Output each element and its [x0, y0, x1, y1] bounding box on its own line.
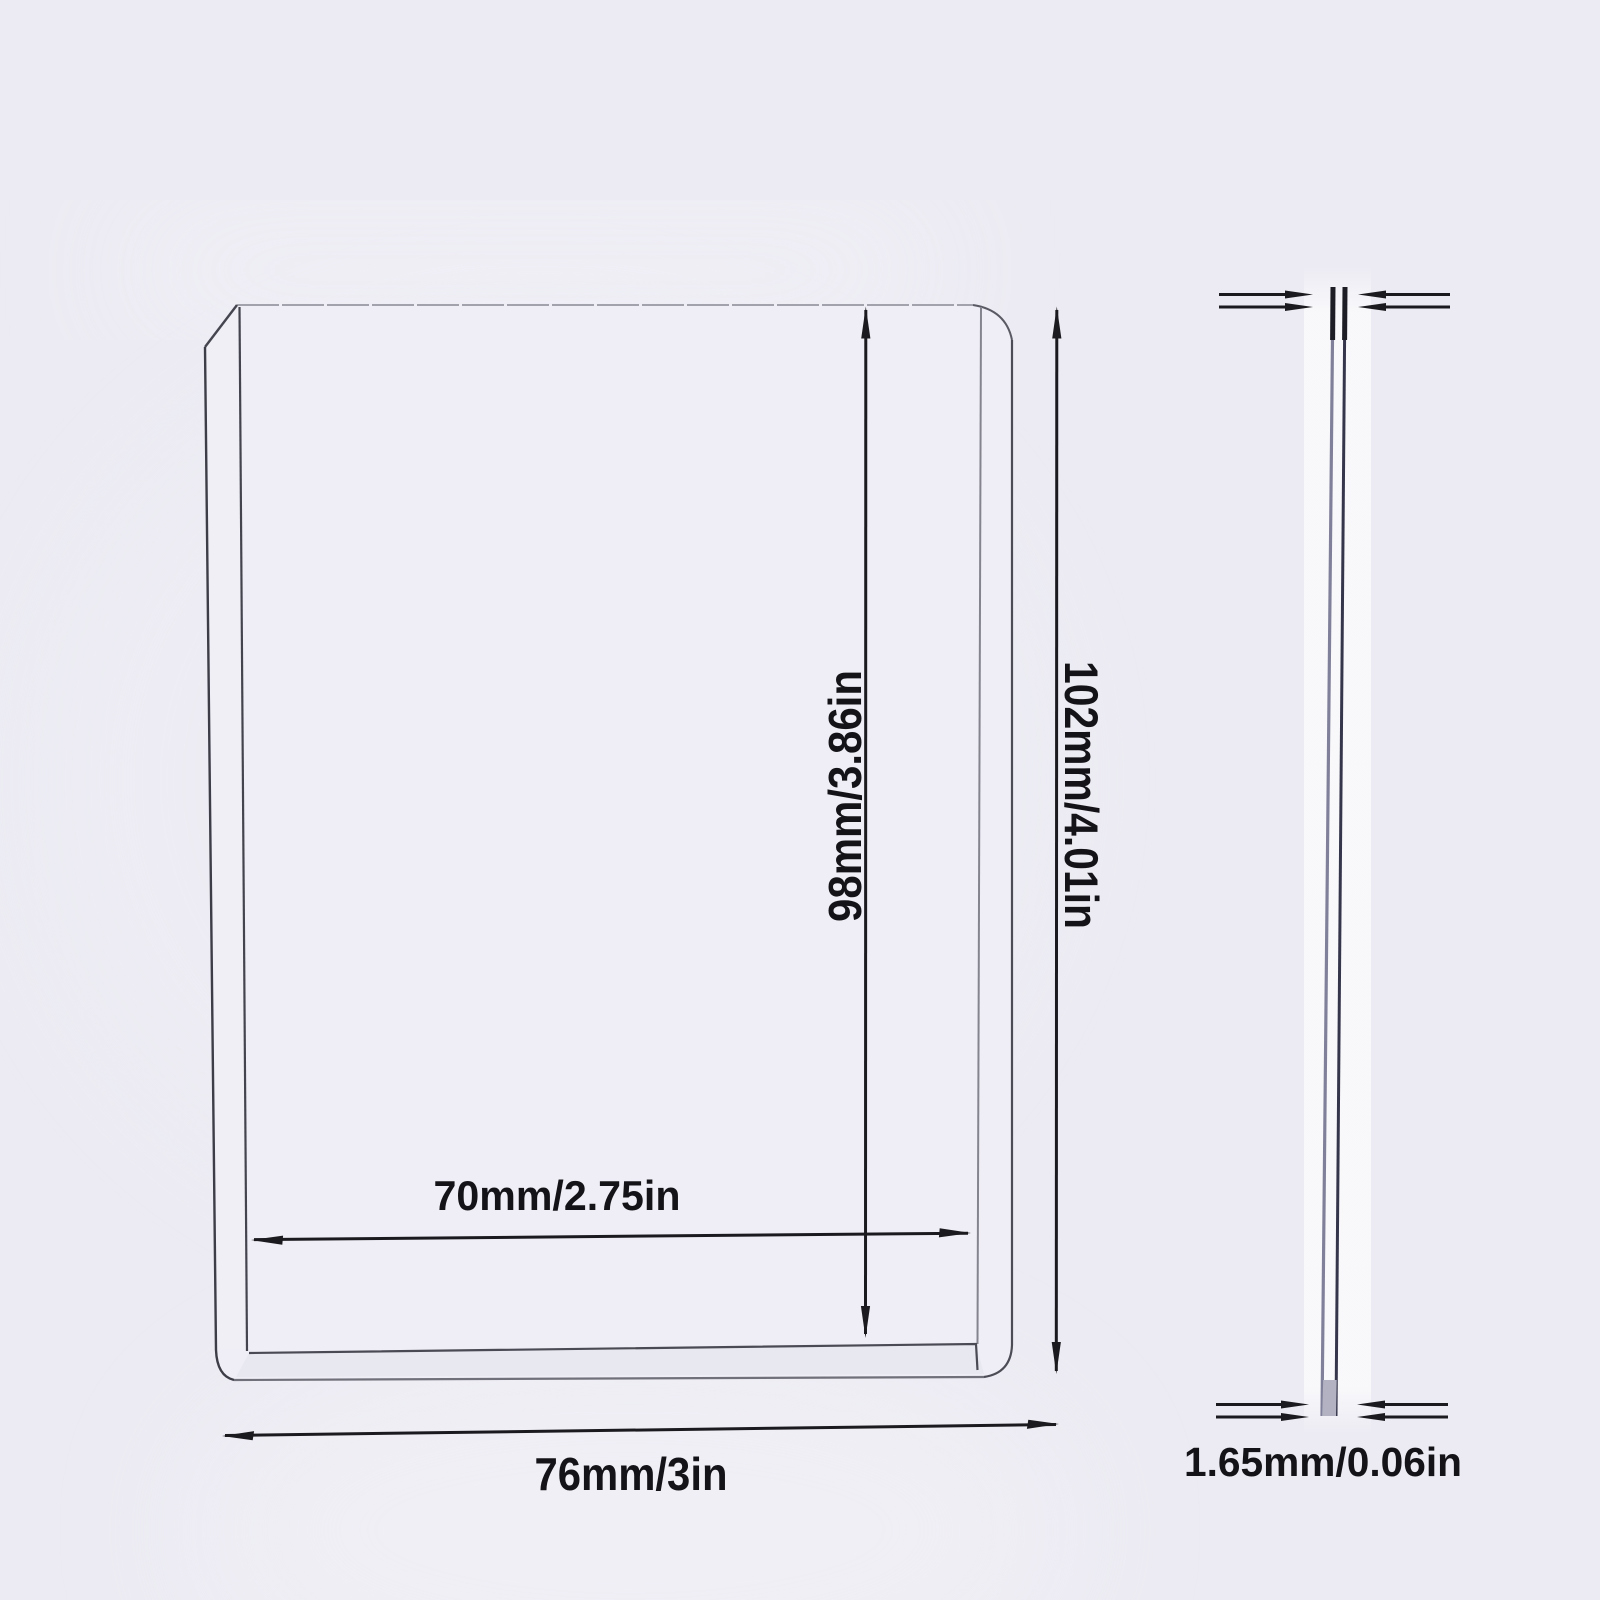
svg-text:70mm/2.75in: 70mm/2.75in: [434, 1172, 681, 1219]
svg-text:102mm/4.01in: 102mm/4.01in: [1055, 661, 1108, 929]
svg-text:76mm/3in: 76mm/3in: [535, 1448, 728, 1500]
svg-text:98mm/3.86in: 98mm/3.86in: [819, 670, 871, 922]
svg-text:1.65mm/0.06in: 1.65mm/0.06in: [1184, 1439, 1462, 1485]
